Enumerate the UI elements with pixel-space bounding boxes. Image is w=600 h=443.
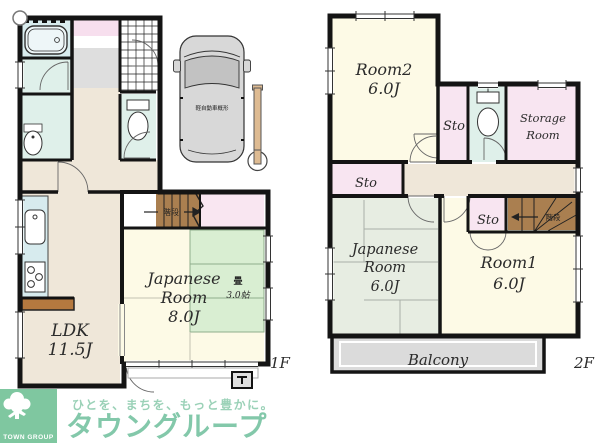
kitchen-counter [22,196,48,300]
japanese-room-size: 8.0J [168,307,201,326]
tree-icon [0,389,34,423]
utility-pole-icon [248,85,267,171]
room1-size-label: 6.0J [493,274,526,293]
room2-label: Room2 [355,60,413,79]
sto-bottom-label: Sto [477,213,499,228]
sto-mid-label: Sto [355,176,377,191]
car-icon [174,36,251,162]
closet-strip [72,18,120,36]
hall-lower [120,160,160,192]
floorplan-canvas: 軽自動車概形 階段 Japanese Room 8.0J 畳 3.0帖 LDK … [0,0,600,443]
closet-by-stairs [200,194,264,228]
room1-label: Room1 [480,253,538,272]
floorplan-image: 軽自動車概形 階段 Japanese Room 8.0J 畳 3.0帖 LDK … [0,0,600,443]
bathtub-icon [24,21,68,54]
ldk-label: LDK [50,321,90,341]
storage-room-label-2: Room [525,128,560,142]
floor1-plan: 軽自動車概形 階段 Japanese Room 8.0J 畳 3.0帖 LDK … [13,11,291,392]
watermark-brand: タウングループ [66,405,267,443]
floor2-plan: Room2 6.0J Sto Storage Room Sto Sto 階段 J… [325,11,595,372]
japanese-room-label-2: Room [160,288,207,307]
car-label: 軽自動車概形 [195,104,229,112]
toilet-icon-2f [477,88,499,136]
japanese-room2-size: 6.0J [371,279,401,295]
ldk-size-label: 11.5J [48,340,94,360]
tatami-label: 畳 [233,276,242,287]
logo-text: TOWN GROUP [3,434,53,443]
storage-room-label-1: Storage [520,111,566,125]
balcony-label: Balcony [407,351,469,369]
floor2-label: 2F [573,354,595,372]
town-group-logo: TOWN GROUP [0,389,57,443]
room2-size-label: 6.0J [368,79,401,98]
toilet-icon-1f [127,100,149,140]
sto-top-label: Sto [443,119,465,134]
washroom [20,58,72,94]
shoe-closet [72,36,120,48]
tatami-size-label: 3.0帖 [226,290,251,301]
meter-box-icon [232,372,252,388]
hall-2f [404,164,578,196]
dining-counter [22,298,74,310]
vanity-sink-icon [24,124,42,155]
japanese-room-label-1: Japanese [144,269,220,288]
stairs-label-2f: 階段 [546,212,561,222]
storage-closet-gray [72,48,120,88]
japanese-room2-label-2: Room [363,260,406,276]
stairs-label-1f: 階段 [163,207,179,217]
manhole-icon [13,11,27,25]
floor1-label: 1F [270,354,291,372]
japanese-room2-label-1: Japanese [349,242,418,258]
entrance-genkan [120,18,160,94]
